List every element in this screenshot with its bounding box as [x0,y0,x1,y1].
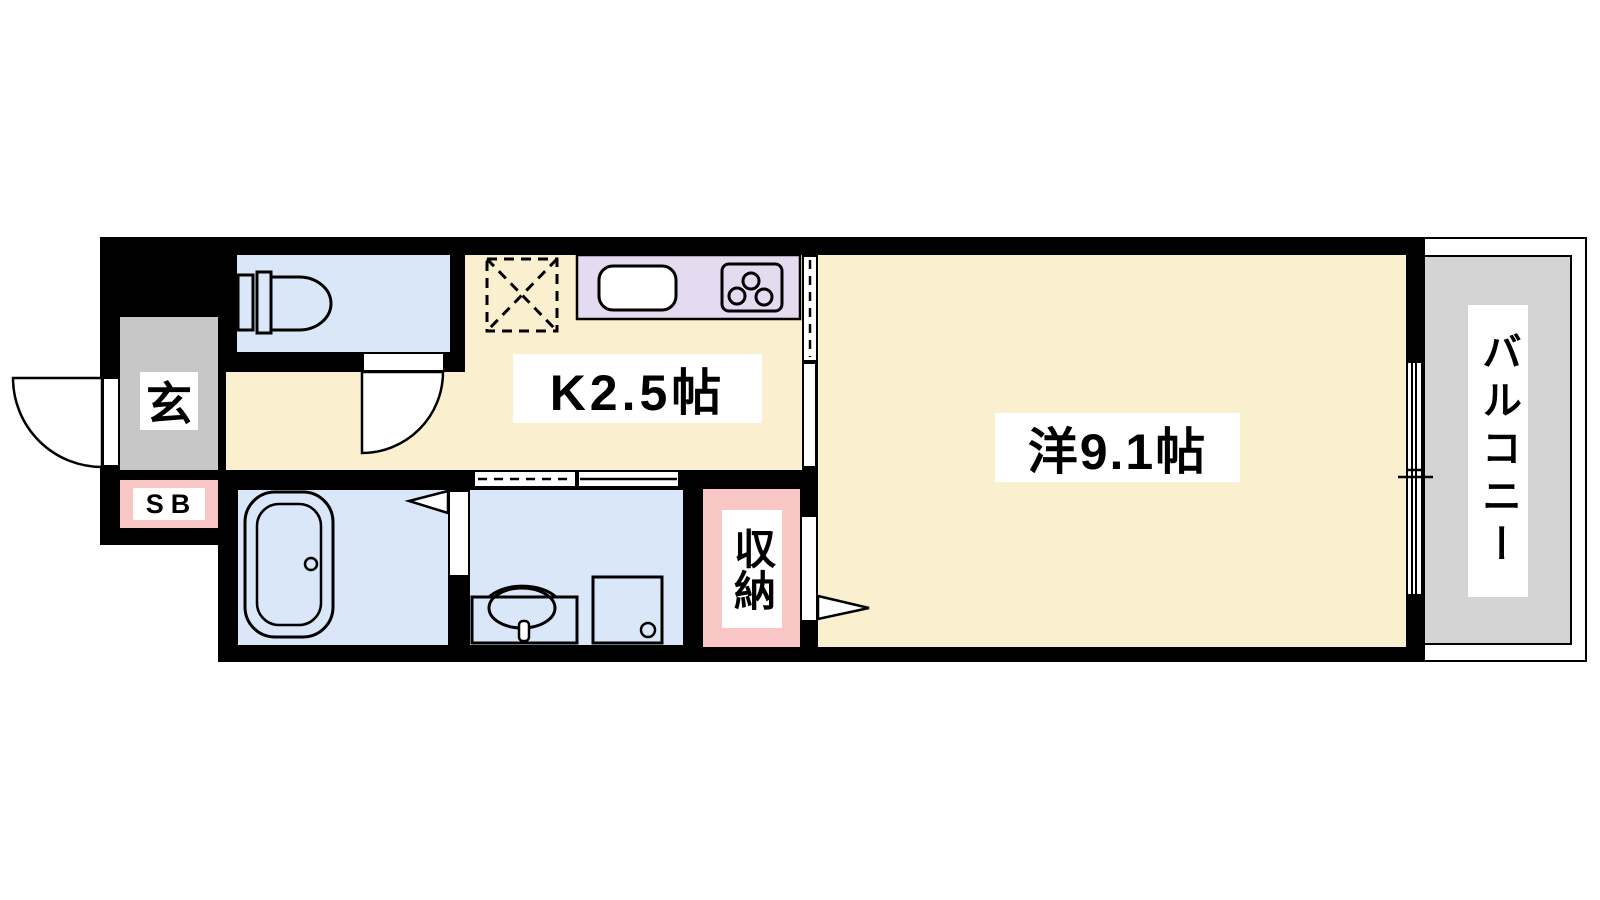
fixture-linework [0,0,1600,900]
shoe-box-label: SB [133,488,205,520]
entrance-swing-door-icon [13,378,102,467]
storage-door-icon [818,596,869,619]
entrance-label: 玄 [140,372,198,430]
kitchen-label: K2.5帖 [513,354,762,423]
washing-machine-space-icon [593,577,662,643]
refrigerator-space-icon [487,259,557,331]
floor-plan-canvas: K2.5帖 洋9.1帖 玄 SB 収納 バルコニー [0,0,1600,900]
shoe-box-label-text: SB [146,489,198,520]
kitchen-label-text: K2.5帖 [550,353,726,425]
sliding-window-icon [1398,363,1433,594]
washbasin-icon [472,586,577,643]
western-room-label: 洋9.1帖 [995,413,1240,482]
balcony-label-text: バルコニー [1469,331,1527,571]
toilet-swing-door-icon [362,372,443,453]
storage-label: 収納 [722,510,782,628]
toilet-icon [238,272,331,333]
kitchen-sink-icon [599,266,676,310]
storage-label-text: 収納 [722,527,783,611]
bathroom-folding-door-icon [409,491,448,513]
bathtub-icon [245,492,333,637]
entrance-label-text: 玄 [146,368,192,434]
balcony-label: バルコニー [1468,305,1528,597]
western-room-label-text: 洋9.1帖 [1028,412,1208,484]
